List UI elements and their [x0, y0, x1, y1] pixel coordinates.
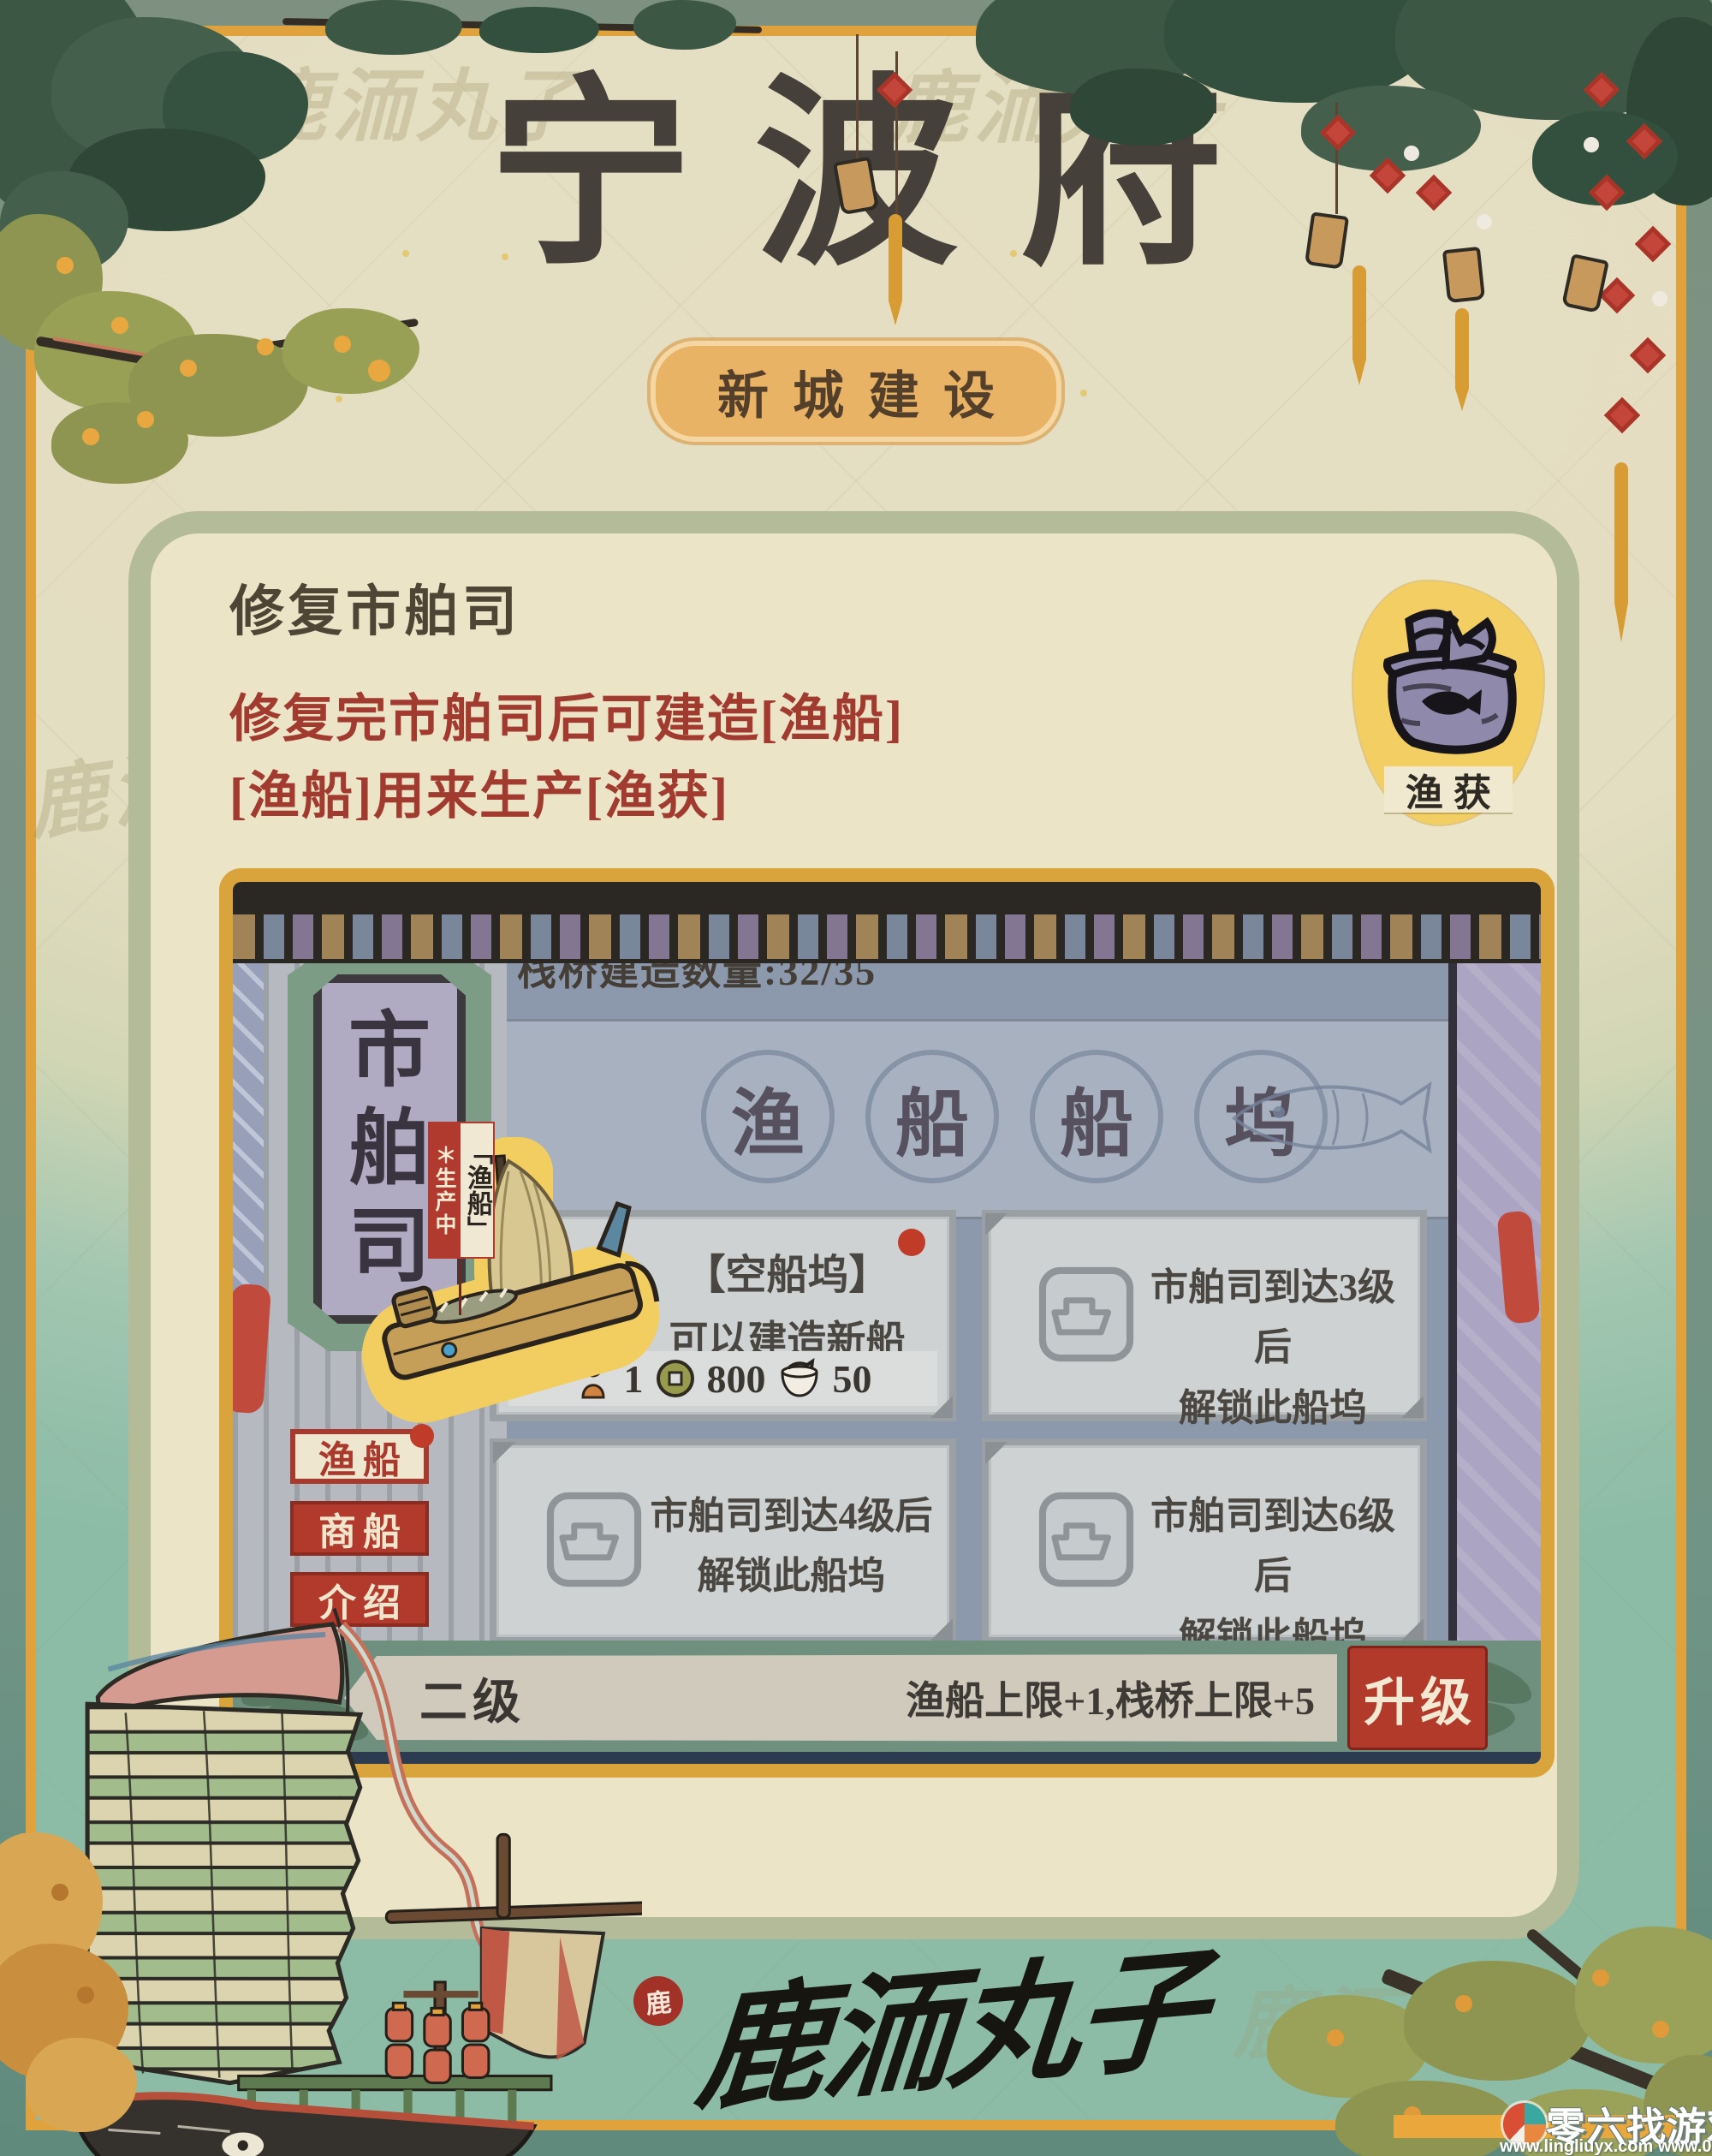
fish-art-icon: [1226, 1063, 1440, 1174]
locked-dock-text: 市舶司到达3级后 解锁此船坞: [1134, 1258, 1412, 1438]
bowl-icon: [778, 1358, 821, 1399]
dock-title-char: 渔: [704, 1052, 832, 1181]
upgrade-effect-label: 渔船上限+1,栈桥上限+5: [906, 1670, 1315, 1726]
dock-slot-locked-3: 市舶司到达3级后 解锁此船坞: [982, 1210, 1427, 1421]
boat-label: ＊生产中 「渔船」: [428, 1122, 495, 1259]
tip-line-1: 修复完市舶司后可建造[渔船]: [229, 677, 904, 752]
dock-title-char: 船: [868, 1052, 996, 1181]
boat-name-label: 「渔船」: [459, 1122, 495, 1259]
boat-status-label: ＊生产中: [428, 1122, 459, 1259]
subtitle-badge-label: 新城建设: [693, 354, 1019, 429]
subtitle-badge: 新城建设: [651, 341, 1061, 442]
tab-merchant-boat[interactable]: 商船: [290, 1501, 429, 1556]
side-column: [1448, 963, 1541, 1648]
fish-catch-icon: 渔获: [1353, 581, 1543, 825]
dock-roof: [233, 882, 1541, 963]
tab-fishing-boat[interactable]: 渔船: [290, 1429, 429, 1484]
fish-basket-icon: [1362, 587, 1533, 758]
dock-title-char: 船: [1032, 1052, 1161, 1181]
tip-line-2: [渔船]用来生产[渔获]: [229, 754, 729, 829]
hanging-cloth: [233, 963, 264, 1306]
tip-heading: 修复市舶司: [229, 568, 520, 646]
promo-urls: www.lingliuyx.com www.06zyx.com: [1500, 2137, 1712, 2156]
fishing-boat[interactable]: [353, 1111, 678, 1437]
upgrade-button[interactable]: 升级: [1347, 1646, 1488, 1750]
dock-slot-locked-6: 市舶司到达6级后 解锁此船坞: [982, 1438, 1427, 1644]
dock-icon: [1037, 1490, 1136, 1593]
locked-dock-text: 市舶司到达4级后 解锁此船坞: [642, 1486, 941, 1607]
dock-icon: [1037, 1265, 1136, 1368]
fish-catch-label: 渔获: [1384, 766, 1513, 813]
poster: 鹿洏丸子 鹿洏丸子 鹿洏丸子 鹿洏丸子 宁波府 新城建设 修复市舶司 修复完市舶…: [0, 0, 1712, 2156]
